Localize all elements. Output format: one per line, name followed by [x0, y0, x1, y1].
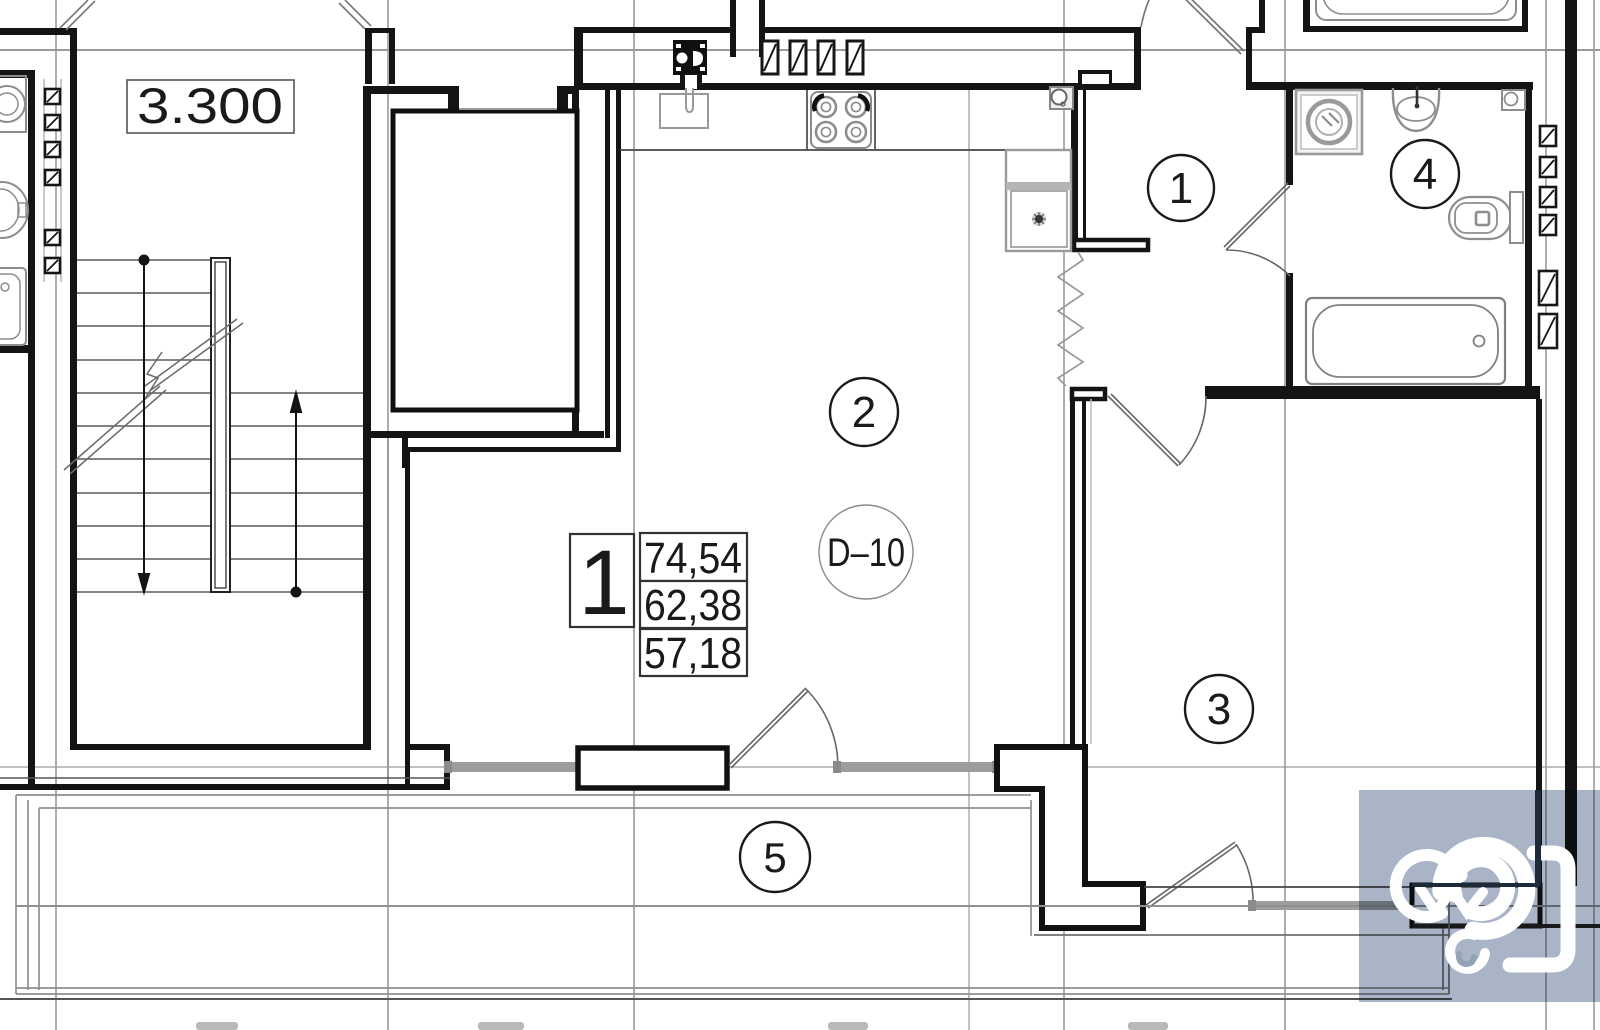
svg-text:62,38: 62,38: [644, 581, 742, 630]
svg-text:2: 2: [852, 388, 876, 437]
svg-text:4: 4: [1413, 150, 1437, 199]
svg-text:1: 1: [1169, 164, 1193, 213]
svg-text:3.300: 3.300: [137, 78, 283, 134]
svg-text:5: 5: [763, 834, 786, 881]
svg-text:74,54: 74,54: [644, 534, 742, 583]
svg-text:1: 1: [578, 532, 629, 634]
svg-text:D–10: D–10: [827, 531, 905, 575]
svg-text:3: 3: [1207, 685, 1231, 734]
svg-text:57,18: 57,18: [644, 629, 742, 678]
